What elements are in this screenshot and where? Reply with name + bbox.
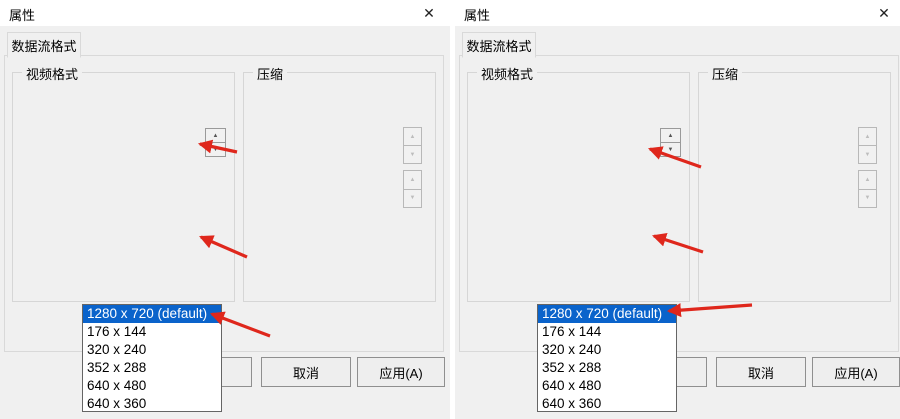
cancel-button[interactable]: 取消 bbox=[716, 357, 806, 387]
i-frame-stepper: ▲ ▼ bbox=[858, 127, 877, 164]
compression-group-label: 压缩 bbox=[253, 64, 287, 83]
properties-dialog-right: 属性 ✕ 数据流格式 视频格式 视频标准: None 帧率(R): 10.000… bbox=[455, 0, 900, 419]
spin-down-icon: ▼ bbox=[403, 145, 422, 164]
frame-rate-stepper[interactable]: ▲ ▼ bbox=[660, 128, 681, 157]
video-format-group-label: 视频格式 bbox=[477, 64, 537, 83]
close-icon[interactable]: ✕ bbox=[871, 3, 897, 23]
spin-up-icon: ▲ bbox=[858, 127, 877, 146]
size-option-selected[interactable]: 1280 x 720 (default) bbox=[83, 305, 221, 323]
spin-up-icon: ▲ bbox=[403, 170, 422, 190]
size-option[interactable]: 320 x 240 bbox=[83, 341, 221, 359]
size-option[interactable]: 352 x 288 bbox=[538, 359, 676, 377]
output-size-dropdown-list: 1280 x 720 (default) 176 x 144 320 x 240… bbox=[537, 304, 677, 412]
close-icon[interactable]: ✕ bbox=[416, 3, 442, 23]
size-option[interactable]: 176 x 144 bbox=[538, 323, 676, 341]
size-option[interactable]: 640 x 480 bbox=[538, 377, 676, 395]
size-option[interactable]: 352 x 288 bbox=[83, 359, 221, 377]
spin-down-icon[interactable]: ▼ bbox=[205, 142, 226, 157]
video-format-group-label: 视频格式 bbox=[22, 64, 82, 83]
compression-group-label: 压缩 bbox=[708, 64, 742, 83]
size-option[interactable]: 176 x 144 bbox=[83, 323, 221, 341]
titlebar: 属性 ✕ bbox=[0, 0, 450, 26]
spin-up-icon: ▲ bbox=[858, 170, 877, 190]
size-option[interactable]: 640 x 360 bbox=[83, 395, 221, 412]
spin-down-icon: ▼ bbox=[403, 189, 422, 209]
video-format-group: 视频格式 bbox=[467, 72, 690, 302]
tab-stream-format[interactable]: 数据流格式 bbox=[462, 32, 536, 58]
frame-rate-stepper[interactable]: ▲ ▼ bbox=[205, 128, 226, 157]
apply-button[interactable]: 应用(A) bbox=[357, 357, 445, 387]
size-option[interactable]: 640 x 360 bbox=[538, 395, 676, 412]
i-frame-stepper: ▲ ▼ bbox=[403, 127, 422, 164]
spin-up-icon[interactable]: ▲ bbox=[660, 128, 681, 143]
spin-up-icon[interactable]: ▲ bbox=[205, 128, 226, 143]
titlebar: 属性 ✕ bbox=[455, 0, 900, 26]
tab-stream-format[interactable]: 数据流格式 bbox=[7, 32, 81, 58]
size-option-selected[interactable]: 1280 x 720 (default) bbox=[538, 305, 676, 323]
dialog-title: 属性 bbox=[464, 5, 490, 24]
spin-down-icon[interactable]: ▼ bbox=[660, 142, 681, 157]
spin-down-icon: ▼ bbox=[858, 145, 877, 164]
video-format-group: 视频格式 bbox=[12, 72, 235, 302]
spin-up-icon: ▲ bbox=[403, 127, 422, 146]
size-option[interactable]: 320 x 240 bbox=[538, 341, 676, 359]
spin-down-icon: ▼ bbox=[858, 189, 877, 209]
cancel-button[interactable]: 取消 bbox=[261, 357, 351, 387]
apply-button[interactable]: 应用(A) bbox=[812, 357, 900, 387]
properties-dialog-left: 属性 ✕ 数据流格式 视频格式 视频标准: None 帧率(R): 120.00… bbox=[0, 0, 450, 419]
output-size-dropdown-list: 1280 x 720 (default) 176 x 144 320 x 240… bbox=[82, 304, 222, 412]
dialog-title: 属性 bbox=[9, 5, 35, 24]
p-frame-stepper: ▲ ▼ bbox=[858, 170, 877, 208]
size-option[interactable]: 640 x 480 bbox=[83, 377, 221, 395]
p-frame-stepper: ▲ ▼ bbox=[403, 170, 422, 208]
